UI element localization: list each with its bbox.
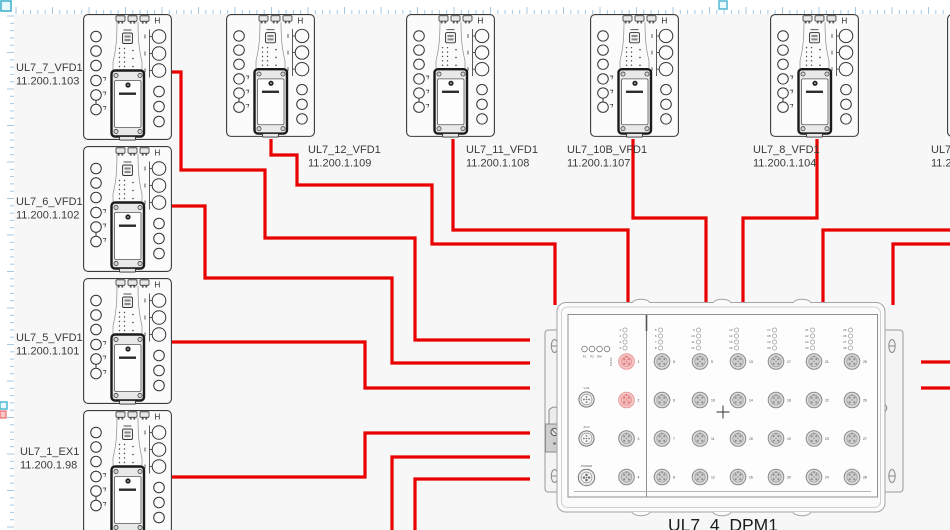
device-label: UL7_7_VFD1 <box>16 62 83 74</box>
svg-text:21: 21 <box>805 328 809 332</box>
port-number: 22 <box>825 399 829 403</box>
svg-text:20: 20 <box>767 346 771 350</box>
device-ip: 11.200.1.101 <box>16 346 79 358</box>
svg-text:P2: P2 <box>590 355 594 359</box>
screw-slot-icon <box>889 470 895 483</box>
device-label: UL7_5_VFD1 <box>16 332 83 344</box>
canvas-origin-handle[interactable] <box>1 1 11 11</box>
port-number: 27 <box>863 437 867 441</box>
svg-text:13: 13 <box>729 328 733 332</box>
device-ip: 11.200.1.108 <box>466 158 529 170</box>
device-ip: 11.200.1.109 <box>308 158 371 170</box>
port-number: 7 <box>673 437 675 441</box>
port-number: 3 <box>638 437 640 441</box>
device-label: UL7_8_VFD1 <box>753 144 820 156</box>
svg-text:24: 24 <box>805 346 809 350</box>
svg-text:12: 12 <box>691 346 695 350</box>
switch-label: UL7_4_DPM1 <box>668 515 778 530</box>
device-label: UL7_12_VFD1 <box>308 144 381 156</box>
port-number: 2 <box>638 399 640 403</box>
port-number: 17 <box>787 360 791 364</box>
svg-text:18: 18 <box>767 334 771 338</box>
ruler-marker-red[interactable] <box>0 411 6 418</box>
status-led-fault <box>604 346 610 352</box>
status-led-p1 <box>582 346 588 352</box>
svg-text:14: 14 <box>729 334 733 338</box>
port-number: 21 <box>825 360 829 364</box>
port-number: 1 <box>638 360 640 364</box>
port-number: 13 <box>749 360 753 364</box>
ruler-left <box>0 0 14 530</box>
svg-text:P1: P1 <box>583 355 587 359</box>
svg-text:23: 23 <box>805 340 809 344</box>
svg-text:POWER: POWER <box>581 464 593 468</box>
ruler-guide-handle-left[interactable] <box>0 402 7 409</box>
port-number: 5 <box>673 360 675 364</box>
svg-text:FAULT: FAULT <box>609 357 613 366</box>
port-number: 6 <box>673 399 675 403</box>
svg-text:15: 15 <box>729 340 733 344</box>
screw-slot-icon <box>889 340 895 353</box>
device-ip: 11.200.1.102 <box>16 210 79 222</box>
svg-text:22: 22 <box>805 334 809 338</box>
svg-text:17: 17 <box>767 328 771 332</box>
vfd-drawing <box>84 279 172 405</box>
vfd-drawing <box>407 15 495 137</box>
svg-text:25: 25 <box>843 328 847 332</box>
port-number: 23 <box>825 437 829 441</box>
port-number: 9 <box>711 360 713 364</box>
ruler-top <box>0 0 950 14</box>
device-label: UL7_1_EX1 <box>20 446 79 458</box>
port-number: 18 <box>787 399 791 403</box>
port-number: 25 <box>863 360 867 364</box>
svg-text:RM: RM <box>597 355 602 359</box>
device-label: UL7_6_VFD1 <box>16 196 83 208</box>
vfd-drawing <box>84 411 172 530</box>
port-number: 15 <box>749 437 753 441</box>
port-number: 10 <box>711 399 715 403</box>
port-number: 11 <box>711 437 715 441</box>
port-number: 28 <box>863 476 867 480</box>
vfd-drawing <box>771 15 859 137</box>
device-ip: 11.200.1.103 <box>16 76 79 88</box>
port-number: 16 <box>749 476 753 480</box>
port-number: 19 <box>787 437 791 441</box>
vfd-drawing <box>84 15 172 141</box>
svg-text:10: 10 <box>691 334 695 338</box>
diagram-canvas[interactable]: H <box>0 0 950 530</box>
svg-text:26: 26 <box>843 334 847 338</box>
device-label: UL7_10B_VFD1 <box>567 144 647 156</box>
port-number: 12 <box>711 476 715 480</box>
vfd-drawing <box>84 147 172 273</box>
svg-text:27: 27 <box>843 340 847 344</box>
device-ip: 11.2 <box>931 158 950 170</box>
status-led-rm <box>597 346 603 352</box>
vfd-drawing <box>591 15 679 137</box>
port-number: 4 <box>638 476 640 480</box>
svg-text:19: 19 <box>767 340 771 344</box>
device-label: UL7_11_VFD1 <box>466 144 538 156</box>
device-ip: 11.200.1.107 <box>567 158 630 170</box>
port-number: 20 <box>787 476 791 480</box>
vfd-drawing <box>227 15 315 137</box>
svg-text:V.24: V.24 <box>584 386 590 390</box>
device-ul7-4-dpm1[interactable]: P1P2RMFAULT V.24ACAPOWER 123412345678567… <box>545 299 903 530</box>
svg-text:ACA: ACA <box>583 425 589 429</box>
port-number: 24 <box>825 476 829 480</box>
port-number: 26 <box>863 399 867 403</box>
svg-text:11: 11 <box>691 340 694 344</box>
device-ip: 11.200.1.98 <box>20 460 77 472</box>
port-number: 14 <box>749 399 753 403</box>
ruler-guide-handle-top[interactable] <box>719 1 727 9</box>
svg-text:16: 16 <box>729 346 733 350</box>
svg-text:28: 28 <box>843 346 847 350</box>
device-ip: 11.200.1.104 <box>753 158 816 170</box>
port-number: 8 <box>673 476 675 480</box>
status-led-p2 <box>589 346 595 352</box>
device-label: UL7_ <box>931 144 950 156</box>
